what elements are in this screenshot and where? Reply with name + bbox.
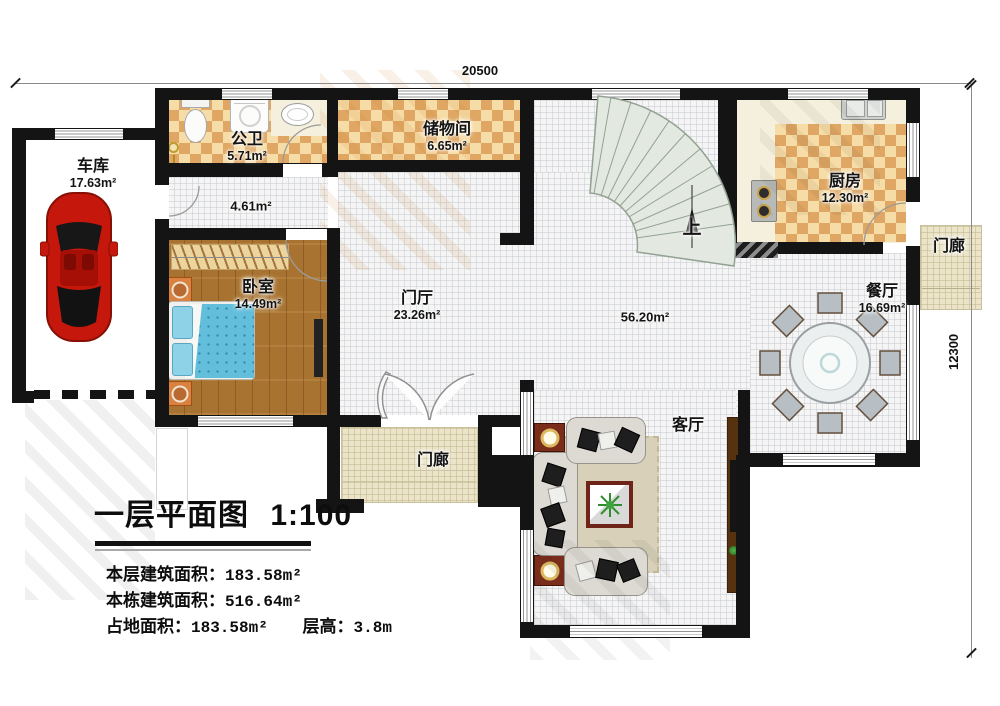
window-right-lower: [907, 305, 919, 440]
wall-bedroom-right: [327, 240, 340, 427]
plan-title: 一层平面图 1:100: [94, 490, 352, 534]
window-living-left-lower: [521, 530, 533, 622]
wall-garage-left: [12, 128, 26, 403]
porch-bottom-step-line: [343, 470, 476, 471]
bath-door-opening: [283, 164, 322, 177]
entry-door-opening: [381, 415, 478, 427]
end-table: [534, 423, 565, 452]
porch-bottom-floor: [341, 427, 478, 503]
info-building-area: 本栋建筑面积：516.64m²: [106, 586, 302, 611]
label-hall-area: 56.20m²: [621, 311, 669, 326]
garage-door-opening: [155, 185, 169, 219]
plan-scale: 1:100: [270, 499, 352, 532]
sofa-bottom: [564, 547, 648, 596]
dimension-line-right: [971, 85, 972, 658]
label-dining: 餐厅16.69m²: [859, 283, 906, 315]
window-right-upper: [907, 123, 919, 177]
wall-entry-right: [478, 415, 492, 455]
toilet-bowl: [184, 109, 207, 143]
label-porch-bottom: 门廊: [417, 452, 449, 470]
car: [40, 190, 118, 344]
wall-stair-kitchen: [718, 88, 737, 243]
window-storage: [398, 89, 448, 99]
wardrobe: [171, 244, 289, 270]
window-living-bottom: [570, 626, 702, 637]
label-foyer: 门厅23.26m²: [394, 290, 441, 322]
window-bedroom: [198, 416, 293, 426]
coffee-table: [586, 481, 633, 528]
info-floor-area: 本层建筑面积：183.58m²: [106, 560, 302, 585]
nightstand: [167, 277, 192, 302]
lamp-icon: [540, 428, 559, 447]
title-underline: [95, 541, 311, 546]
label-hallway-area: 4.61m²: [230, 200, 271, 215]
label-kitchen: 厨房12.30m²: [822, 173, 869, 205]
garage-door-dashed: [34, 390, 157, 399]
plant-icon: [596, 491, 624, 519]
washer: [230, 95, 269, 133]
sink: [281, 103, 314, 126]
info-footprint-height: 占地面积：183.58m² 层高：3.8m: [106, 612, 392, 637]
nightstand: [167, 381, 192, 406]
dimension-line-top: [15, 83, 971, 84]
bedroom-door-opening: [286, 229, 327, 240]
porch-bottom-step-line2: [343, 481, 476, 482]
bedroom-tv: [314, 319, 323, 377]
sofa-top: [566, 417, 646, 464]
wall-storage-bottom: [330, 160, 534, 172]
wall-hall-dining: [738, 390, 750, 457]
stove: [751, 180, 777, 222]
label-stairs-up: 上: [682, 217, 701, 238]
label-living: 客厅: [672, 417, 704, 435]
label-bedroom: 卧室14.49m²: [235, 279, 282, 311]
plan-title-text: 一层平面图: [94, 499, 249, 532]
wall-bath-storage: [327, 88, 338, 168]
bed: [168, 301, 255, 380]
wall-main-left: [155, 88, 169, 427]
window-living-left-upper: [521, 392, 533, 455]
wall-storage-right: [520, 88, 534, 245]
dimension-top-value: 20500: [440, 63, 520, 78]
label-storage: 储物间6.65m²: [423, 121, 471, 153]
title-underline-thin: [95, 549, 311, 551]
floor-plan: 车库17.63m² 公卫5.71m² 4.61m² 储物间6.65m² 厨房12…: [0, 0, 1000, 706]
hatched-cabinet: [718, 242, 778, 258]
window-stairhall: [592, 89, 680, 99]
wall-living-right: [736, 455, 750, 638]
wall-kitchen-bottom: [777, 242, 883, 254]
wall-garage-foot: [12, 391, 34, 403]
window-bath: [222, 89, 272, 99]
label-bathroom: 公卫5.71m²: [227, 131, 267, 163]
floor-drain-icon: [168, 142, 179, 153]
label-porch-right: 门廊: [933, 238, 965, 256]
lamp-icon: [540, 561, 559, 580]
label-garage: 车库17.63m²: [70, 158, 117, 190]
window-kitchen: [788, 89, 868, 99]
dimension-right-value: 12300: [946, 300, 961, 370]
porch-door-opening: [906, 202, 920, 246]
window-garage: [55, 129, 123, 139]
wall-foot: [500, 233, 522, 245]
window-dining: [783, 454, 875, 465]
end-table: [534, 555, 565, 586]
sofa-main: [532, 452, 578, 556]
